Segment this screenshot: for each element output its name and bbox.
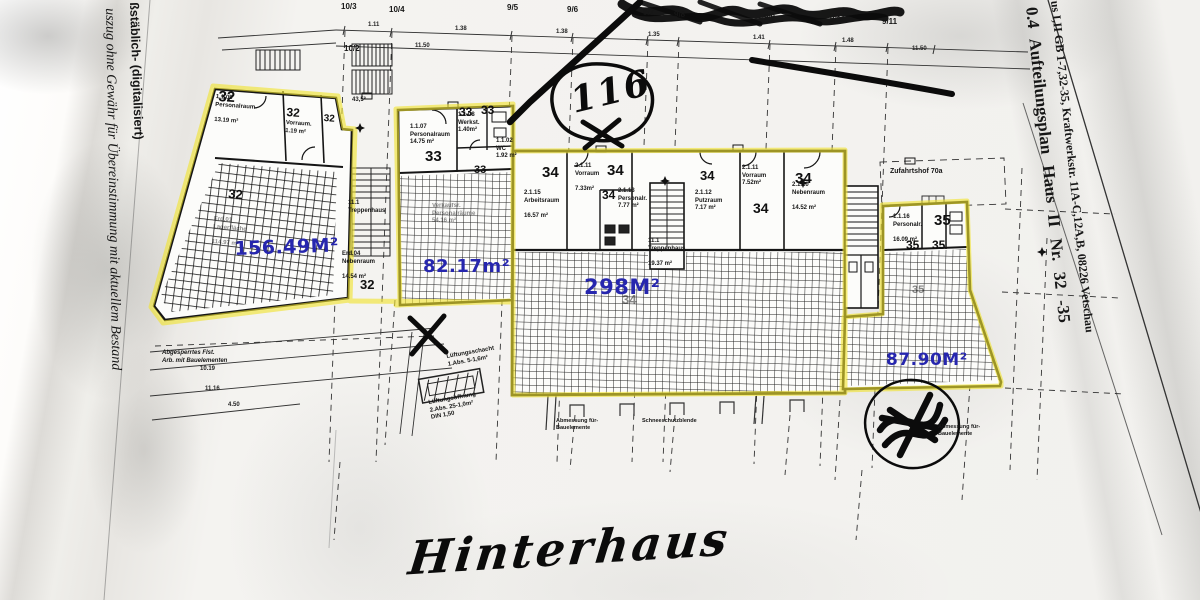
room-label: Vorraum. 1.19 m²	[285, 120, 312, 137]
unit-number-34: 34	[753, 200, 769, 218]
room-label: 2.1.11 Vorraum 7.33m²	[575, 163, 599, 193]
room-label: 11.1 Treppenhaus	[348, 200, 385, 215]
x-mark-left	[410, 316, 446, 354]
grid-label: 9/7	[643, 8, 654, 18]
unit-number-35: 35	[934, 212, 951, 231]
area-label-unit-34: 298M²	[584, 274, 660, 300]
barrier-note: Abgesperrtes Flst. Arb. mit Bauelementen	[162, 350, 227, 365]
room-label: 2.1.10 Nebenraum 14.52 m²	[792, 182, 825, 212]
grid-label: 10/4	[389, 5, 405, 15]
unit-number-34: 34	[542, 164, 559, 183]
dimension: 10.19	[200, 366, 215, 374]
unit-number-32: 32	[286, 105, 300, 121]
room-label: 11.1 Treppenhaus 19.37 m²	[648, 238, 685, 268]
courtyard-label: Zufahrtshof 70a	[890, 168, 943, 177]
unit-number-33: 33	[425, 148, 442, 167]
x-mark-center	[583, 120, 622, 148]
grid-label: 10/2	[344, 44, 360, 54]
dimension: 1.48	[842, 38, 854, 46]
grid-label: 9/9	[764, 13, 775, 23]
area-label-unit-32: 156.49M²	[234, 234, 339, 261]
ground-note: Abmessung für- Bauelemente	[556, 418, 598, 432]
row-note: Schneeschutzblende	[642, 418, 697, 425]
grid-label: 10/3	[341, 2, 357, 12]
grid-label: 9/6	[567, 5, 578, 15]
dimension: 11.50	[415, 43, 430, 51]
dimension: 11.50	[912, 46, 927, 54]
dimension: 4.50	[228, 402, 240, 410]
dimension: 1.41	[753, 35, 765, 43]
room-label: 2.1.15 Arbeitsraum 16.57 m²	[524, 190, 559, 220]
dimension: 1.11	[368, 22, 379, 30]
grid-label: 9/11	[882, 17, 897, 27]
unit-number-32: 32	[323, 113, 335, 126]
dimension: 1.38	[455, 26, 467, 34]
scanned-floorplan-page: ßstäblich- (digitalisiert) uszug ohne Ge…	[0, 0, 1200, 600]
grid-label: 9/10	[830, 15, 846, 25]
unit-number-33: 33	[481, 103, 494, 118]
room-label: 2.1.11 Vorraum 7.52m²	[742, 165, 766, 188]
dimension: 11.16	[205, 386, 220, 394]
unit-number-35: 35	[932, 238, 945, 253]
grid-label: 9/8	[674, 10, 685, 20]
room-label: 2.1.13 Personalr. 7.77 m²	[618, 188, 647, 211]
dimension: 1.38	[556, 29, 568, 37]
room-label: 2.1.12 Putzraum 7.17 m²	[695, 190, 722, 213]
room-label: 1.1.02 WC 1.92 m²	[496, 138, 517, 161]
scribble-side-note: Abmessung für- Bauelemente	[938, 424, 980, 438]
angle-note: 43,5°	[352, 97, 366, 105]
room-label: 1.1.07 Personalraum 14.75 m²	[410, 124, 450, 147]
dimension: 1.35	[648, 32, 660, 40]
unit-number-34: 34	[607, 162, 624, 181]
room-label: 1.1.05 Personalraum 13.19 m²	[214, 94, 256, 127]
unit-number-35: 35	[912, 284, 924, 298]
room-label: Verkaufsr. Personalräume 54.16 m²	[432, 203, 475, 226]
unit-number-34: 34	[602, 188, 615, 203]
grid-label: 9/5	[507, 3, 518, 13]
unit-number-32: 32	[228, 186, 244, 203]
unit-number-33: 33	[474, 164, 486, 178]
room-label: Erd.04 Nebenraum 14.54 m²	[342, 251, 375, 281]
area-label-unit-33: 82.17m²	[423, 256, 510, 279]
room-label: 1.1.16 Personalr. 16.09 m²	[893, 214, 922, 244]
room-label: Erd.01 Lagerfläche 114.97 m²	[211, 216, 247, 249]
unit-number-34: 34	[700, 168, 714, 184]
area-label-unit-35: 87.90M²	[886, 350, 968, 371]
room-label: 1.1.08 Werkst. 1.40m²	[458, 112, 480, 135]
